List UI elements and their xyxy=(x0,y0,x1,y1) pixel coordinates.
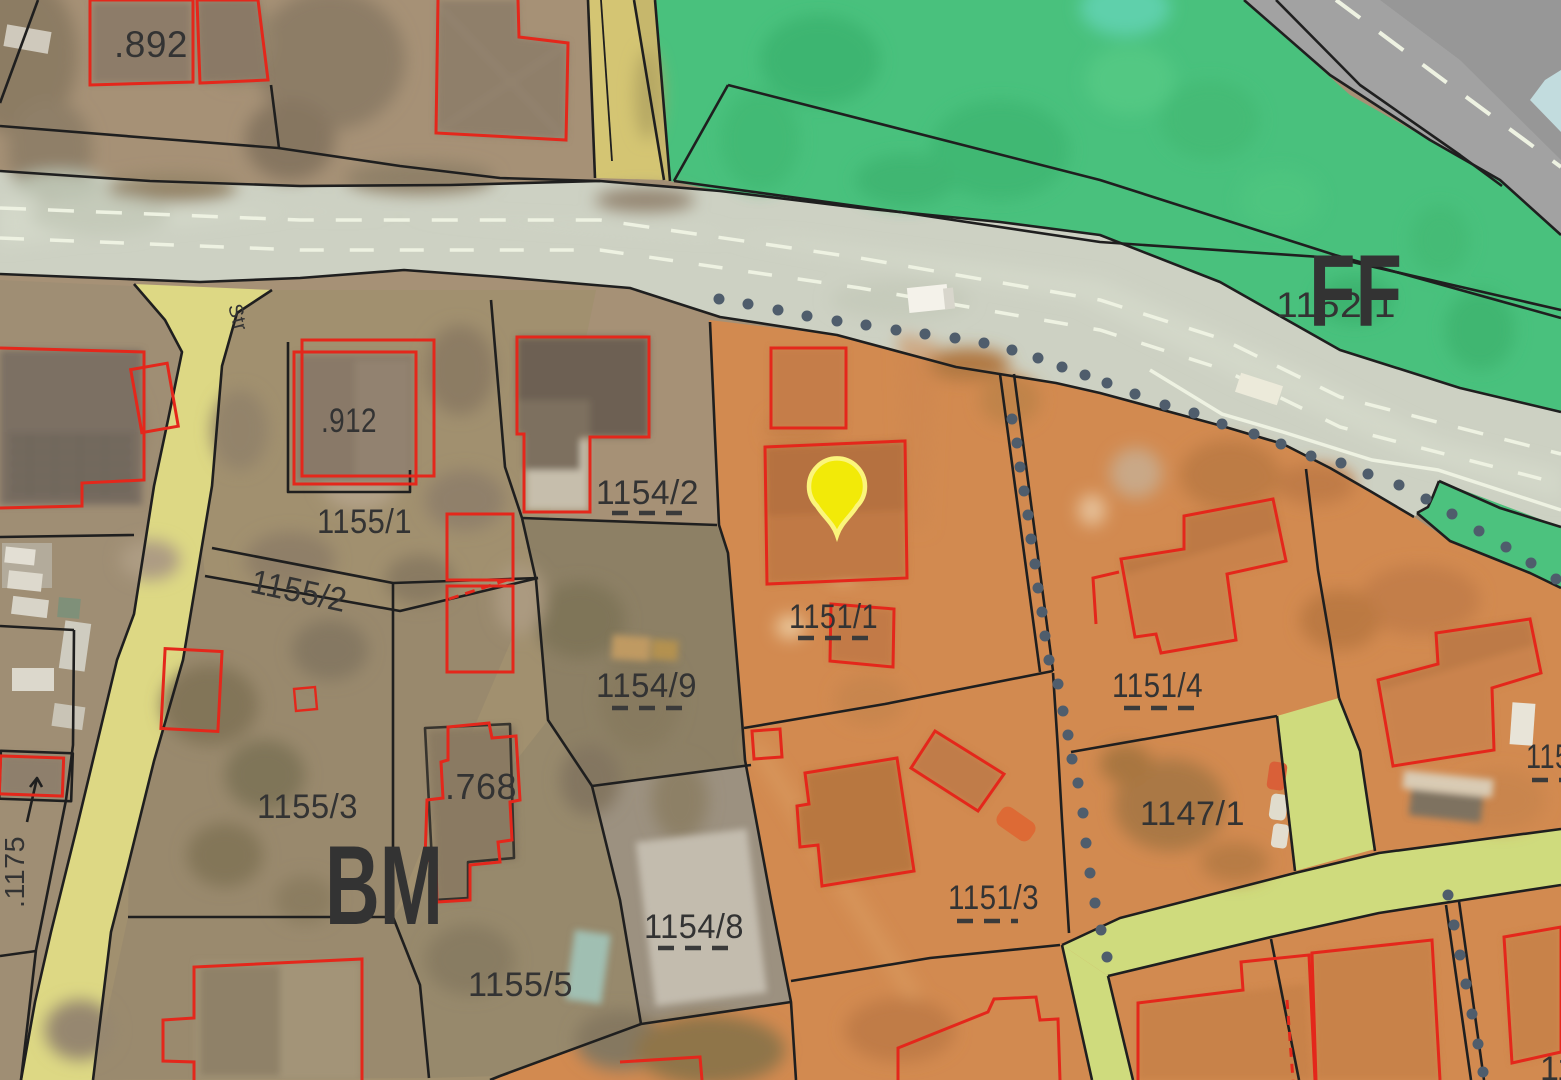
svg-text:1154/2: 1154/2 xyxy=(596,474,699,512)
svg-text:1155/1: 1155/1 xyxy=(317,503,412,541)
svg-text:1151: 1151 xyxy=(1526,738,1561,776)
svg-text:1154/8: 1154/8 xyxy=(644,908,744,946)
svg-text:.892: .892 xyxy=(114,24,188,65)
svg-text:1151/4: 1151/4 xyxy=(1112,667,1203,705)
svg-text:1147/1: 1147/1 xyxy=(1140,795,1245,833)
svg-text:FF: FF xyxy=(1309,234,1402,348)
svg-text:1155/5: 1155/5 xyxy=(468,966,573,1004)
svg-text:.1175: .1175 xyxy=(0,836,30,908)
svg-text:1151/3: 1151/3 xyxy=(948,879,1039,917)
svg-text:11: 11 xyxy=(1540,1050,1561,1080)
svg-text:1154/9: 1154/9 xyxy=(596,667,697,705)
svg-text:.912: .912 xyxy=(321,402,377,440)
svg-text:1151/1: 1151/1 xyxy=(789,598,878,636)
svg-text:1155/3: 1155/3 xyxy=(257,788,358,826)
svg-text:BM: BM xyxy=(325,823,443,948)
svg-text:.768: .768 xyxy=(445,766,517,807)
